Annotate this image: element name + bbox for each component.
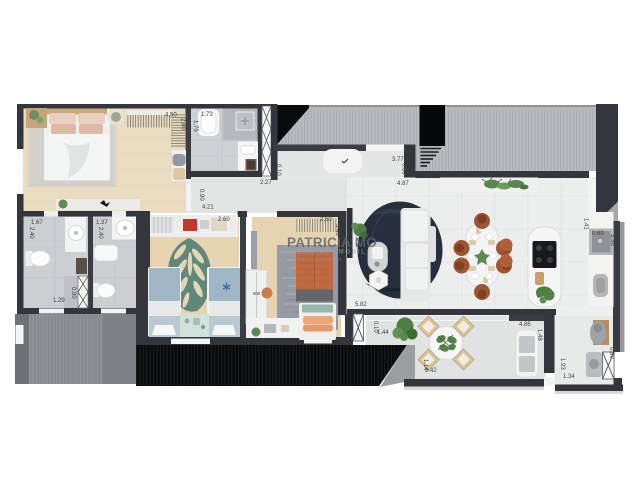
svg-text:0.30: 0.30 (401, 163, 407, 175)
svg-text:0.10: 0.10 (275, 164, 281, 176)
svg-text:0.80: 0.80 (608, 347, 614, 359)
svg-text:1.44: 1.44 (377, 330, 389, 336)
svg-text:0.90: 0.90 (70, 287, 76, 299)
svg-text:2.60: 2.60 (320, 217, 332, 223)
svg-text:PATRICIA MO: PATRICIA MO (287, 235, 377, 250)
svg-text:3.36: 3.36 (609, 234, 615, 246)
svg-text:5.82: 5.82 (355, 302, 367, 308)
svg-text:2.40: 2.40 (28, 227, 34, 239)
svg-text:1.67: 1.67 (31, 220, 43, 226)
svg-text:0.90: 0.90 (198, 189, 204, 201)
svg-text:1.48: 1.48 (536, 329, 542, 341)
svg-text:1.41: 1.41 (583, 218, 589, 230)
svg-text:1.34: 1.34 (563, 374, 575, 380)
svg-text:4.21: 4.21 (202, 205, 214, 211)
svg-text:1.14: 1.14 (422, 359, 428, 371)
svg-text:4.86: 4.86 (519, 322, 531, 328)
svg-text:1.73: 1.73 (201, 112, 213, 118)
svg-text:CRECI 26348 J: CRECI 26348 J (293, 257, 342, 263)
svg-text:1.93: 1.93 (559, 358, 565, 370)
svg-text:2.27: 2.27 (260, 180, 272, 186)
svg-text:0.69: 0.69 (592, 231, 604, 237)
svg-text:2.40: 2.40 (97, 227, 103, 239)
svg-text:3.40: 3.40 (238, 223, 244, 235)
svg-text:NEGOCIOS IMOBIL: NEGOCIOS IMOBIL (285, 250, 366, 256)
svg-text:4.50: 4.50 (165, 113, 177, 119)
svg-text:4.87: 4.87 (397, 181, 409, 187)
svg-text:1.75: 1.75 (192, 120, 198, 132)
svg-text:2.80: 2.80 (180, 118, 186, 130)
svg-text:2.60: 2.60 (218, 217, 230, 223)
svg-text:1.37: 1.37 (96, 220, 108, 226)
svg-text:3.40: 3.40 (334, 224, 340, 236)
svg-text:1.29: 1.29 (53, 298, 65, 304)
